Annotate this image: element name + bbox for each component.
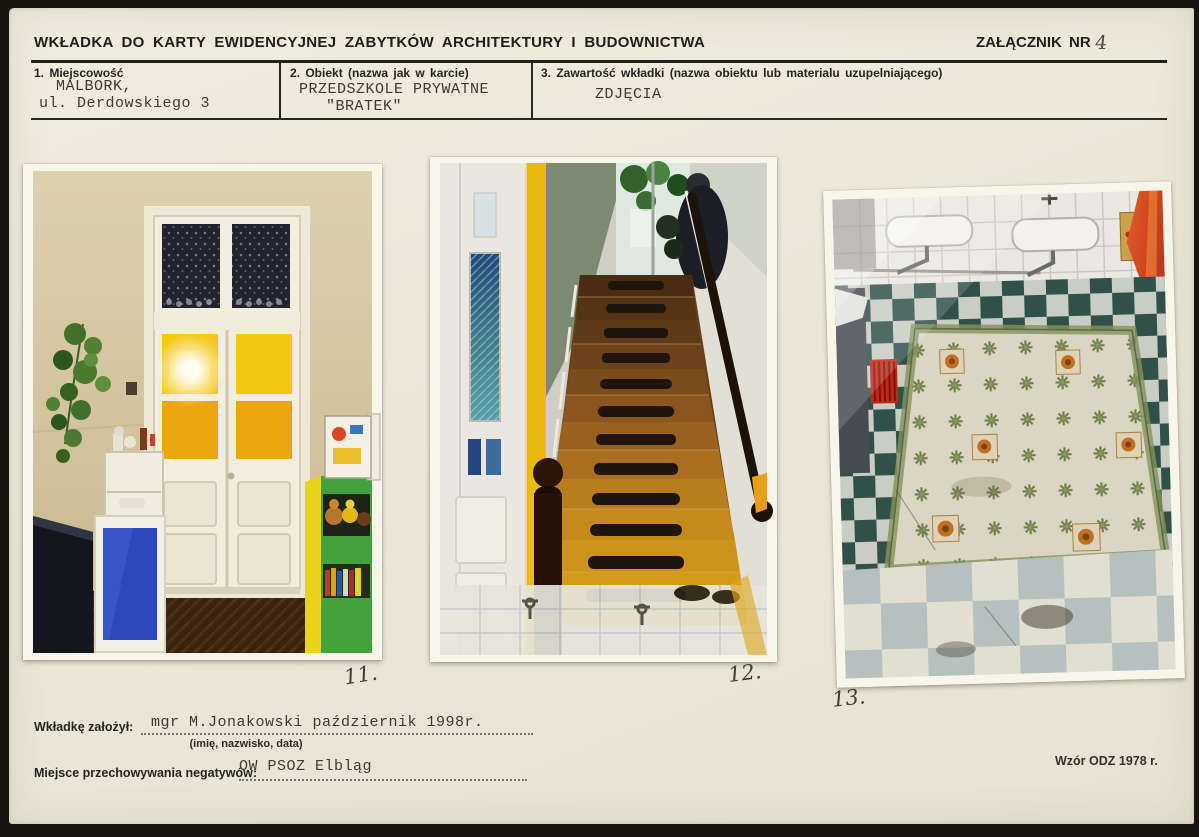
photo-label-12: 12. (727, 659, 763, 687)
negatives-dotted-line (239, 778, 527, 781)
photo-label-13: 13. (831, 684, 867, 711)
photo-bathroom-floor (823, 181, 1185, 688)
attachment-label: ZAŁĄCZNIK NR (976, 34, 1091, 51)
field-value-miejscowosc-line2: ul. Derdowskiego 3 (39, 95, 210, 112)
founder-label: Wkładkę założył: (34, 720, 133, 734)
document-title: WKŁADKA DO KARTY EWIDENCYJNEJ ZABYTKÓW A… (34, 34, 705, 51)
founder-dotted-line (141, 732, 533, 735)
attachment-number-handwritten: 4 (1094, 32, 1108, 54)
poster (325, 414, 380, 480)
field-value-obiekt-line1: PRZEDSZKOLE PRYWATNE (299, 81, 489, 98)
ornamental-tile-panel (882, 322, 1166, 570)
field-value-zawartosc: ZDJĘCIA (595, 86, 662, 103)
photo-bathroom-floor-image (823, 181, 1185, 688)
photo-label-11: 11. (342, 661, 379, 690)
paper-sheet: WKŁADKA DO KARTY EWIDENCYJNEJ ZABYTKÓW A… (9, 8, 1194, 824)
negatives-label: Miejsce przechowywania negatywów: (34, 766, 257, 780)
fields-divider-2 (531, 62, 533, 119)
field-label-zawartosc: 3. Zawartość wkładki (nazwa obiektu lub … (541, 66, 942, 80)
photo-staircase-image (430, 157, 777, 662)
fields-divider-1 (279, 62, 281, 119)
cart (105, 426, 163, 528)
form-note: Wzór ODZ 1978 r. (1055, 754, 1158, 768)
photo-playroom-door-image (23, 164, 382, 660)
newel-post (533, 458, 563, 488)
fields-bottom-rule (31, 118, 1167, 120)
light-switch (126, 382, 137, 395)
photo-playroom-door (23, 164, 382, 660)
scanned-document: WKŁADKA DO KARTY EWIDENCYJNEJ ZABYTKÓW A… (0, 0, 1199, 837)
header-rule (31, 60, 1167, 63)
negatives-value: OW PSOZ Elbląg (239, 758, 372, 775)
field-value-miejscowosc-line1: MALBORK, (56, 78, 132, 95)
folding-screen (95, 516, 165, 652)
toy-shelf (305, 466, 372, 653)
field-label-obiekt: 2. Obiekt (nazwa jak w karcie) (290, 66, 469, 80)
tile-double-exposure (440, 575, 767, 655)
founder-value: mgr M.Jonakowski październik 1998r. (151, 714, 484, 731)
photo-staircase (430, 157, 777, 662)
field-value-obiekt-line2: "BRATEK" (326, 98, 402, 115)
founder-hint: (imię, nazwisko, data) (141, 738, 351, 750)
